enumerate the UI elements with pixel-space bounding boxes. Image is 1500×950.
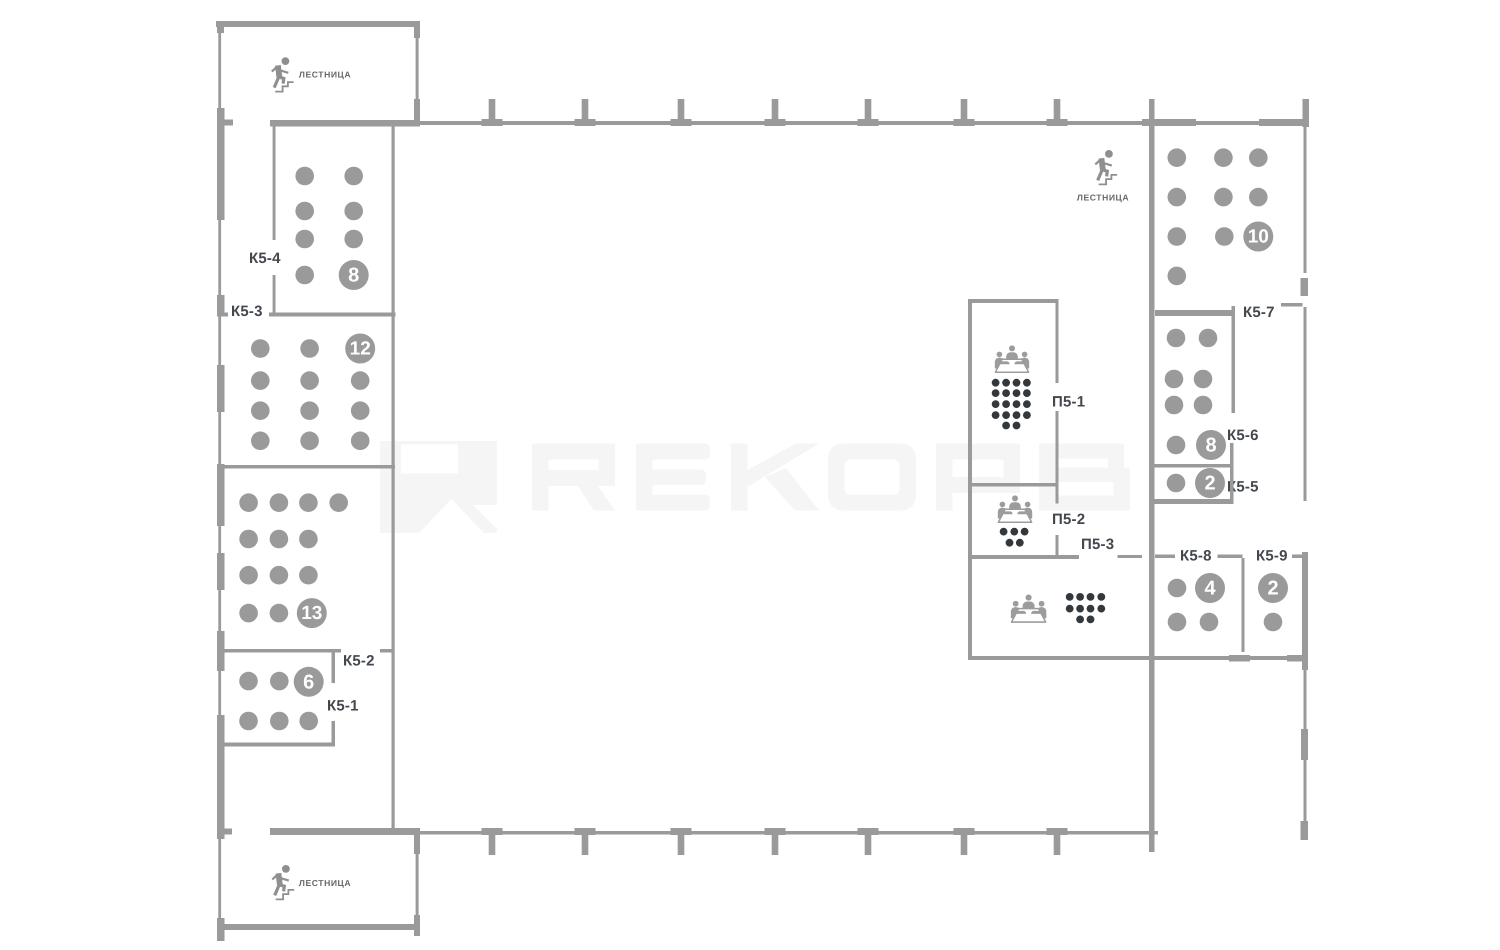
svg-text:К5-1: К5-1 — [327, 698, 359, 715]
svg-text:К5-6: К5-6 — [1227, 427, 1259, 444]
svg-text:К5-2: К5-2 — [343, 653, 375, 670]
svg-text:К5-9: К5-9 — [1256, 548, 1288, 565]
svg-text:12: 12 — [350, 339, 371, 360]
svg-text:ЛЕСТНИЦА: ЛЕСТНИЦА — [299, 878, 351, 888]
svg-text:П5-2: П5-2 — [1052, 511, 1085, 528]
svg-text:6: 6 — [303, 671, 314, 693]
svg-text:4: 4 — [1204, 578, 1216, 600]
svg-text:13: 13 — [301, 603, 322, 624]
svg-text:8: 8 — [1205, 435, 1216, 457]
svg-text:П5-1: П5-1 — [1052, 394, 1085, 411]
svg-text:8: 8 — [348, 265, 359, 287]
svg-text:К5-3: К5-3 — [231, 303, 263, 320]
svg-text:10: 10 — [1248, 227, 1269, 248]
svg-text:П5-3: П5-3 — [1081, 536, 1114, 553]
svg-text:К5-8: К5-8 — [1180, 548, 1212, 565]
svg-text:ЛЕСТНИЦА: ЛЕСТНИЦА — [1077, 193, 1129, 203]
svg-text:2: 2 — [1204, 473, 1215, 495]
svg-text:К5-7: К5-7 — [1243, 304, 1275, 321]
svg-text:К5-4: К5-4 — [249, 250, 281, 267]
svg-text:2: 2 — [1267, 578, 1278, 600]
svg-text:ЛЕСТНИЦА: ЛЕСТНИЦА — [299, 70, 351, 80]
